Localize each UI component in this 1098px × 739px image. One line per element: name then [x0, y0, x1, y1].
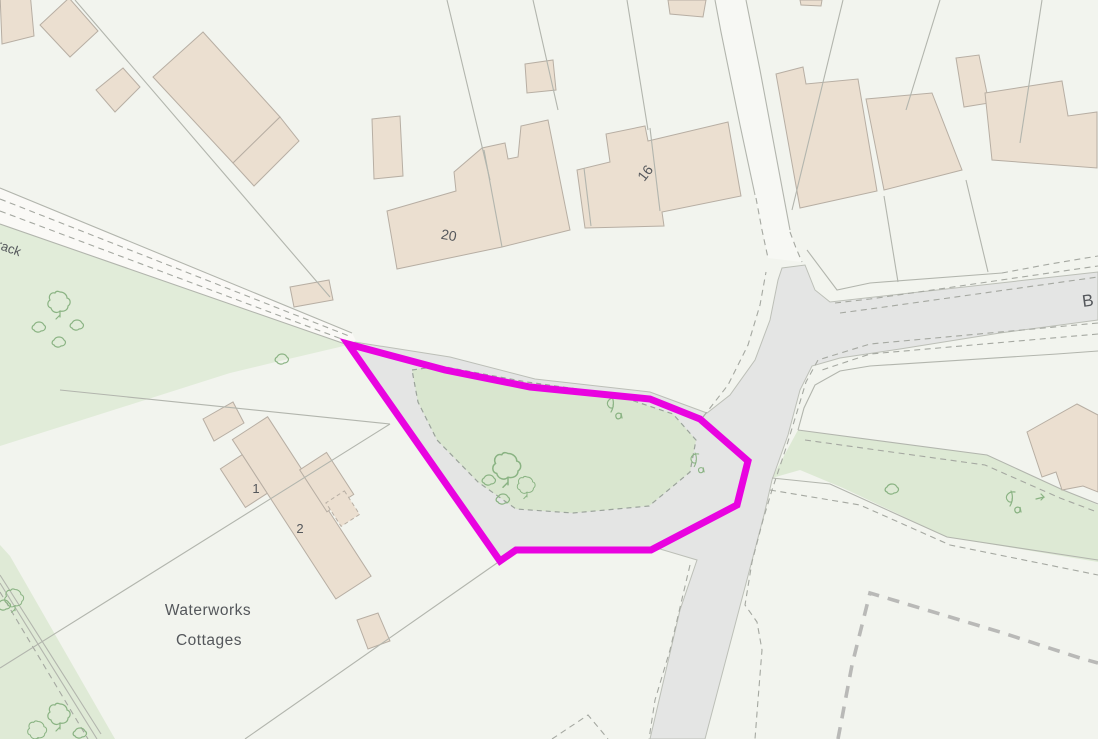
- cottage-1-label: 1: [252, 481, 259, 496]
- map-canvas[interactable]: rack B 20 16 1 2 Waterworks Cottages: [0, 0, 1098, 739]
- cottage-2-label: 2: [296, 521, 303, 536]
- house-20-label: 20: [440, 226, 458, 244]
- building-top-sliver-1: [668, 0, 706, 17]
- waterworks-label-line1: Waterworks: [165, 602, 251, 619]
- waterworks-label-line2: Cottages: [176, 632, 242, 649]
- building-topleft-1: [0, 0, 34, 44]
- building-top-sliver-2: [800, 0, 822, 6]
- building-garage-left: [372, 116, 403, 179]
- building-garage-small: [525, 60, 556, 93]
